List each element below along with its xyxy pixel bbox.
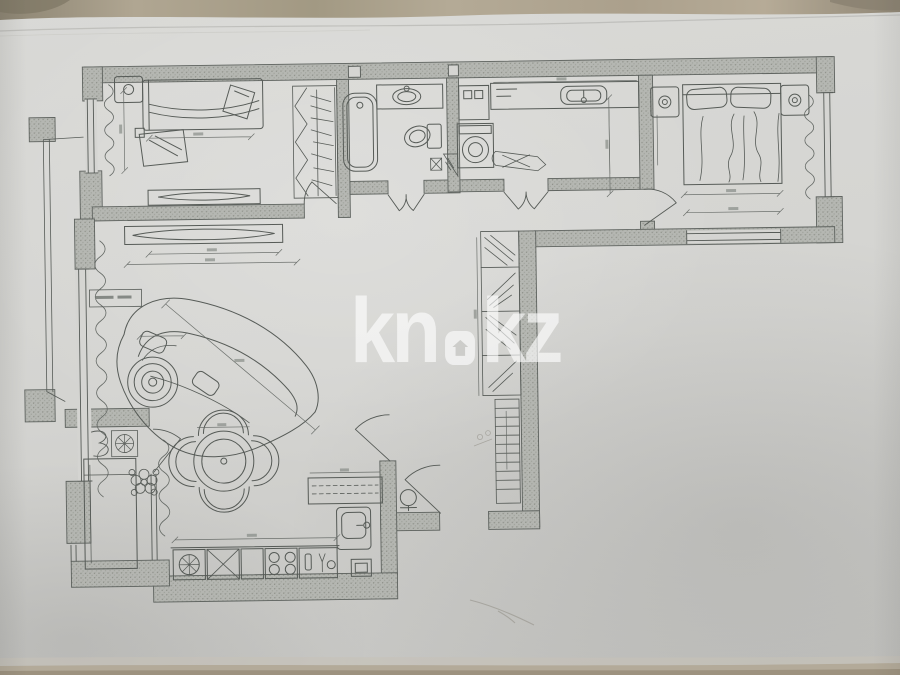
- washing-machine: [457, 123, 494, 167]
- desk-mirror: [135, 128, 188, 167]
- balcony: [83, 430, 139, 569]
- pouf: [400, 489, 416, 510]
- counter-sink: [491, 81, 639, 109]
- side-counter: [308, 477, 382, 504]
- walls: [20, 57, 847, 604]
- floor-plan: [20, 57, 847, 604]
- shoe-rack: [495, 399, 520, 503]
- floor-plan-photo: knkz: [0, 0, 900, 675]
- toilet: [402, 123, 442, 151]
- nightstand-left: [651, 87, 679, 117]
- living-room: [89, 224, 320, 496]
- kitchen: [168, 408, 383, 580]
- paper-bottom-edge: [0, 656, 900, 675]
- single-bed: [142, 79, 263, 131]
- hallway: [397, 231, 523, 511]
- nightstand-right: [781, 85, 809, 115]
- ironing-board: [492, 151, 546, 172]
- laundry-room: [457, 81, 640, 172]
- dresser: [148, 189, 260, 206]
- double-bed: [683, 83, 782, 184]
- floor-plan-drawing: [0, 0, 900, 675]
- wardrobe: [293, 86, 339, 199]
- vanity-sink: [377, 84, 443, 109]
- closet-sections: [481, 231, 521, 396]
- bedroom-2: [651, 83, 810, 185]
- fan-square: [111, 430, 137, 456]
- kitchen-sink: [336, 507, 371, 549]
- tv-stand: [125, 224, 283, 244]
- plant: [129, 469, 159, 495]
- bathroom: [343, 84, 458, 178]
- balcony-sink: [91, 431, 108, 457]
- bench: [84, 458, 138, 569]
- cabinet: [459, 85, 489, 119]
- curved-sofa: [116, 296, 319, 458]
- table-surface: [0, 0, 900, 20]
- paper-crease: [0, 15, 900, 36]
